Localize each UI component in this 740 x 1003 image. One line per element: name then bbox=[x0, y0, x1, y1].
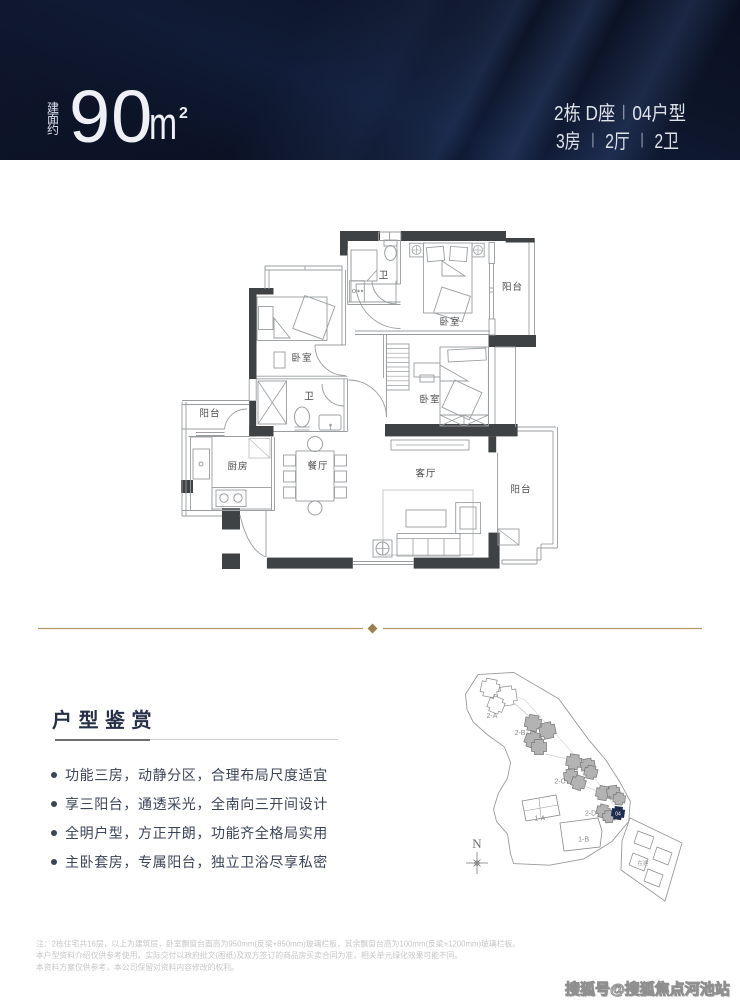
svg-text:卫: 卫 bbox=[304, 392, 315, 403]
svg-text:2-B: 2-B bbox=[515, 730, 526, 737]
svg-text:阳台: 阳台 bbox=[502, 281, 523, 293]
svg-text:阳台: 阳台 bbox=[510, 484, 531, 496]
svg-text:N: N bbox=[472, 836, 482, 851]
svg-text:1-B: 1-B bbox=[578, 837, 589, 844]
svg-text:卫: 卫 bbox=[379, 271, 390, 282]
svg-text:04: 04 bbox=[615, 812, 621, 818]
svg-text:2-C: 2-C bbox=[554, 779, 565, 786]
svg-text:阳台: 阳台 bbox=[199, 408, 220, 420]
svg-text:在建: 在建 bbox=[637, 859, 649, 867]
svg-text:卧室: 卧室 bbox=[419, 394, 440, 406]
svg-text:2-A: 2-A bbox=[487, 713, 498, 720]
svg-text:卧室: 卧室 bbox=[291, 352, 312, 364]
svg-text:客厅: 客厅 bbox=[415, 468, 436, 480]
svg-text:1-A: 1-A bbox=[535, 816, 546, 823]
svg-text:餐厅: 餐厅 bbox=[307, 460, 328, 472]
svg-text:厨房: 厨房 bbox=[227, 461, 248, 473]
svg-text:卧室: 卧室 bbox=[439, 316, 460, 328]
svg-text:2-D: 2-D bbox=[585, 811, 596, 818]
